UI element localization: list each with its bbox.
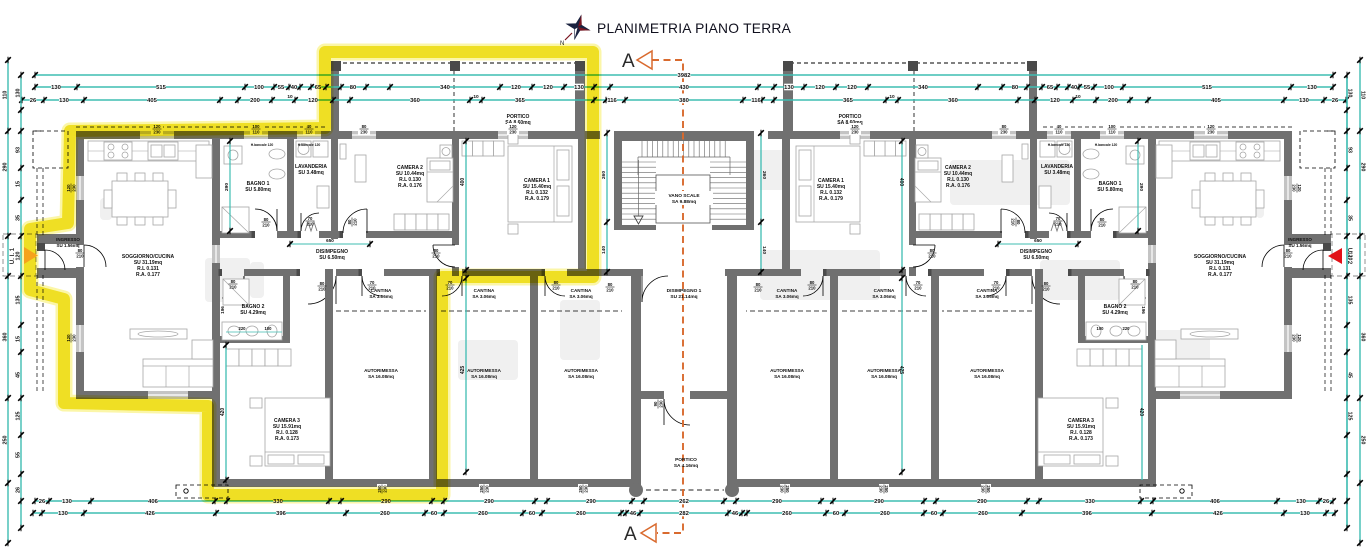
- svg-text:DISIMPEGNO 1: DISIMPEGNO 1: [667, 288, 702, 294]
- svg-text:515: 515: [156, 85, 166, 91]
- svg-text:210: 210: [262, 222, 270, 227]
- svg-text:SA 3.06mq: SA 3.06mq: [775, 294, 799, 299]
- svg-text:196: 196: [1141, 306, 1146, 314]
- svg-text:15: 15: [16, 336, 22, 342]
- svg-text:250: 250: [884, 485, 889, 493]
- svg-text:230: 230: [851, 129, 859, 134]
- svg-text:290: 290: [586, 499, 596, 505]
- svg-text:130: 130: [16, 89, 22, 98]
- svg-text:340: 340: [440, 85, 450, 91]
- svg-text:SA 4.16mq: SA 4.16mq: [674, 463, 698, 469]
- svg-text:426: 426: [1213, 511, 1223, 517]
- svg-text:N: N: [560, 41, 564, 47]
- svg-text:60: 60: [931, 511, 937, 517]
- svg-text:10: 10: [1075, 94, 1081, 100]
- svg-text:90: 90: [653, 401, 658, 406]
- svg-text:SU 3.48mq: SU 3.48mq: [298, 170, 324, 176]
- svg-text:290: 290: [224, 183, 230, 191]
- svg-text:R.A. 0.177: R.A. 0.177: [136, 272, 160, 278]
- svg-text:80: 80: [756, 282, 761, 287]
- svg-text:SA 16.08mq: SA 16.08mq: [568, 374, 594, 379]
- svg-text:140: 140: [601, 246, 607, 254]
- svg-text:210: 210: [992, 285, 1000, 290]
- svg-text:116: 116: [607, 98, 617, 104]
- svg-text:SA 16.08mq: SA 16.08mq: [471, 374, 497, 379]
- svg-text:10: 10: [287, 94, 293, 100]
- svg-text:CANTINA: CANTINA: [571, 288, 592, 293]
- svg-text:120: 120: [308, 98, 318, 104]
- svg-text:AUTORIMESSA: AUTORIMESSA: [770, 368, 805, 373]
- svg-text:60: 60: [529, 511, 535, 517]
- svg-text:A: A: [624, 524, 637, 545]
- svg-text:230: 230: [1207, 129, 1215, 134]
- svg-text:120: 120: [511, 85, 521, 91]
- svg-text:AUTORIMESSA: AUTORIMESSA: [364, 368, 399, 373]
- svg-text:AUTORIMESSA: AUTORIMESSA: [564, 368, 599, 373]
- svg-text:400: 400: [898, 178, 904, 187]
- svg-text:420: 420: [220, 408, 226, 417]
- svg-text:250: 250: [479, 485, 484, 493]
- svg-text:65: 65: [1047, 85, 1054, 91]
- svg-text:230: 230: [658, 400, 663, 408]
- svg-text:100: 100: [1097, 326, 1105, 331]
- svg-text:396: 396: [276, 511, 286, 517]
- svg-text:SU 4.29mq: SU 4.29mq: [240, 310, 266, 316]
- svg-text:80: 80: [810, 280, 815, 285]
- svg-text:40: 40: [291, 85, 297, 91]
- svg-text:45: 45: [1347, 372, 1353, 378]
- svg-text:80: 80: [350, 85, 356, 91]
- svg-text:290: 290: [1138, 183, 1144, 191]
- svg-text:80: 80: [362, 124, 367, 129]
- svg-text:SU 4.29mq: SU 4.29mq: [1102, 310, 1128, 316]
- svg-text:210: 210: [1054, 221, 1062, 226]
- svg-text:340: 340: [918, 85, 928, 91]
- svg-text:360: 360: [3, 333, 9, 342]
- svg-text:INGRESSO: INGRESSO: [1288, 237, 1312, 242]
- svg-text:210: 210: [306, 221, 314, 226]
- svg-text:210: 210: [368, 285, 376, 290]
- svg-text:290: 290: [874, 499, 884, 505]
- svg-text:100: 100: [254, 85, 264, 91]
- svg-text:130: 130: [59, 98, 69, 104]
- svg-text:210: 210: [1011, 218, 1016, 226]
- svg-text:405: 405: [147, 98, 157, 104]
- svg-text:AUTORIMESSA: AUTORIMESSA: [970, 368, 1005, 373]
- svg-text:120: 120: [1297, 334, 1302, 342]
- svg-text:CANTINA: CANTINA: [474, 288, 495, 293]
- svg-text:130: 130: [62, 499, 72, 505]
- svg-text:230: 230: [360, 129, 368, 134]
- svg-text:650: 650: [326, 238, 334, 243]
- svg-text:80: 80: [320, 281, 325, 286]
- svg-text:SA 3.06mq: SA 3.06mq: [472, 294, 496, 299]
- svg-text:250: 250: [785, 485, 790, 493]
- svg-text:200: 200: [1108, 98, 1118, 104]
- svg-text:70: 70: [1056, 216, 1061, 221]
- svg-text:210: 210: [1042, 286, 1050, 291]
- svg-text:130: 130: [784, 85, 794, 91]
- svg-text:230: 230: [1292, 184, 1297, 192]
- svg-text:120: 120: [509, 124, 517, 129]
- svg-text:VANO SCALE: VANO SCALE: [668, 193, 700, 199]
- svg-text:420: 420: [1138, 408, 1144, 417]
- svg-text:260: 260: [782, 511, 792, 517]
- svg-text:125: 125: [1347, 412, 1353, 421]
- svg-text:AUTORIMESSA: AUTORIMESSA: [467, 368, 502, 373]
- svg-text:426: 426: [145, 511, 155, 517]
- svg-text:290: 290: [1360, 163, 1366, 172]
- svg-text:100: 100: [265, 326, 273, 331]
- svg-text:55: 55: [1084, 85, 1091, 91]
- svg-text:290: 290: [484, 499, 494, 505]
- svg-text:40: 40: [1071, 85, 1077, 91]
- svg-text:120: 120: [1297, 184, 1302, 192]
- svg-text:100: 100: [1108, 124, 1116, 129]
- svg-text:120: 120: [16, 252, 22, 261]
- svg-text:230: 230: [1000, 129, 1008, 134]
- svg-text:26: 26: [1323, 499, 1330, 505]
- svg-text:SA 16.08mq: SA 16.08mq: [774, 374, 800, 379]
- svg-text:PORTICO: PORTICO: [675, 457, 697, 463]
- svg-text:35: 35: [16, 215, 22, 221]
- svg-text:120: 120: [543, 85, 553, 91]
- svg-text:230: 230: [509, 129, 517, 134]
- svg-text:120: 120: [851, 124, 859, 129]
- svg-text:220: 220: [1123, 326, 1131, 331]
- svg-text:H.bancale 120: H.bancale 120: [251, 143, 274, 147]
- svg-text:H.bancale 120: H.bancale 120: [1048, 143, 1071, 147]
- svg-text:210: 210: [1284, 253, 1292, 258]
- svg-text:93: 93: [16, 147, 22, 153]
- svg-text:330: 330: [1085, 499, 1095, 505]
- svg-text:R.A. 0.176: R.A. 0.176: [398, 183, 422, 189]
- svg-text:290: 290: [977, 499, 987, 505]
- svg-text:70: 70: [370, 280, 375, 285]
- svg-text:260: 260: [380, 511, 390, 517]
- svg-text:380: 380: [679, 98, 689, 104]
- svg-text:120: 120: [1050, 98, 1060, 104]
- svg-text:110: 110: [1056, 129, 1064, 134]
- svg-text:80: 80: [1100, 217, 1105, 222]
- svg-text:70: 70: [916, 280, 921, 285]
- svg-text:135: 135: [16, 296, 22, 305]
- svg-text:SA 16.08mq: SA 16.08mq: [871, 374, 897, 379]
- svg-text:260: 260: [478, 511, 488, 517]
- svg-text:INGRESSO: INGRESSO: [56, 237, 80, 242]
- svg-text:26: 26: [39, 499, 46, 505]
- svg-text:210: 210: [1098, 222, 1106, 227]
- svg-text:80: 80: [264, 217, 269, 222]
- svg-text:116: 116: [751, 98, 761, 104]
- svg-text:46: 46: [630, 511, 637, 517]
- svg-text:250: 250: [3, 436, 9, 445]
- svg-text:AUTORIMESSA: AUTORIMESSA: [867, 368, 902, 373]
- svg-text:55: 55: [16, 452, 22, 458]
- svg-text:120: 120: [847, 85, 857, 91]
- svg-text:210: 210: [914, 285, 922, 290]
- svg-text:230: 230: [879, 485, 884, 493]
- svg-text:210: 210: [606, 287, 614, 292]
- svg-text:R.A. 0.173: R.A. 0.173: [1069, 436, 1093, 442]
- svg-text:396: 396: [1082, 511, 1092, 517]
- svg-text:SA 3.06mq: SA 3.06mq: [872, 294, 896, 299]
- svg-text:230: 230: [981, 485, 986, 493]
- svg-text:130: 130: [1299, 98, 1309, 104]
- svg-text:120: 120: [815, 85, 825, 91]
- svg-text:80: 80: [1016, 220, 1021, 225]
- svg-text:515: 515: [1202, 85, 1212, 91]
- svg-text:CANTINA: CANTINA: [777, 288, 798, 293]
- svg-text:196: 196: [220, 306, 225, 314]
- svg-text:210: 210: [76, 253, 84, 258]
- svg-text:SU 6.50mq: SU 6.50mq: [319, 255, 345, 261]
- svg-text:SU 6.50mq: SU 6.50mq: [1023, 255, 1049, 261]
- svg-text:230: 230: [583, 485, 588, 493]
- svg-text:R.A. 0.176: R.A. 0.176: [946, 183, 970, 189]
- svg-text:365: 365: [843, 98, 853, 104]
- svg-text:140: 140: [761, 246, 767, 254]
- svg-text:H.bancale 120: H.bancale 120: [298, 143, 321, 147]
- svg-text:PLANIMETRIA PIANO TERRA: PLANIMETRIA PIANO TERRA: [597, 21, 792, 36]
- svg-text:SU 21.14mq: SU 21.14mq: [670, 294, 697, 300]
- svg-text:230: 230: [1292, 334, 1297, 342]
- svg-text:80: 80: [347, 219, 352, 224]
- svg-text:CANTINA: CANTINA: [874, 288, 895, 293]
- svg-text:250: 250: [1360, 436, 1366, 445]
- svg-text:135: 135: [1347, 296, 1353, 305]
- svg-text:80: 80: [1044, 281, 1049, 286]
- svg-text:R.A. 0.179: R.A. 0.179: [819, 196, 843, 202]
- svg-text:15: 15: [16, 181, 22, 187]
- svg-text:40: 40: [1057, 124, 1062, 129]
- svg-text:365: 365: [515, 98, 525, 104]
- svg-text:360: 360: [1360, 333, 1366, 342]
- svg-text:80: 80: [1133, 279, 1138, 284]
- svg-text:130: 130: [574, 85, 584, 91]
- svg-text:210: 210: [552, 285, 560, 290]
- svg-text:650: 650: [1034, 238, 1042, 243]
- svg-text:360: 360: [410, 98, 420, 104]
- svg-text:10: 10: [473, 94, 479, 100]
- svg-text:SA 3.06mq: SA 3.06mq: [975, 294, 999, 299]
- svg-text:260: 260: [601, 171, 607, 179]
- svg-text:210: 210: [754, 287, 762, 292]
- svg-text:SU 3.48mq: SU 3.48mq: [1044, 170, 1070, 176]
- svg-text:210: 210: [229, 284, 237, 289]
- svg-text:SU 1.56mq: SU 1.56mq: [1288, 243, 1311, 248]
- svg-text:80: 80: [434, 248, 439, 253]
- svg-text:70: 70: [994, 280, 999, 285]
- svg-text:406: 406: [148, 499, 158, 505]
- svg-text:26: 26: [16, 487, 22, 493]
- svg-text:230: 230: [780, 485, 785, 493]
- svg-text:200: 200: [250, 98, 260, 104]
- svg-text:SA 16.08mq: SA 16.08mq: [974, 374, 1000, 379]
- svg-text:210: 210: [432, 253, 440, 258]
- svg-text:SU 5.80mq: SU 5.80mq: [1097, 187, 1123, 193]
- svg-text:R.A. 0.177: R.A. 0.177: [1208, 272, 1232, 278]
- svg-text:110: 110: [3, 91, 9, 100]
- svg-text:130: 130: [1347, 89, 1353, 98]
- svg-text:R.A. 0.179: R.A. 0.179: [525, 196, 549, 202]
- svg-text:70: 70: [308, 216, 313, 221]
- svg-text:406: 406: [1210, 499, 1220, 505]
- svg-text:130: 130: [1307, 85, 1317, 91]
- svg-text:SA 9.88mq: SA 9.88mq: [672, 199, 696, 205]
- svg-text:R.A. 0.173: R.A. 0.173: [275, 436, 299, 442]
- svg-text:80: 80: [1012, 85, 1018, 91]
- svg-text:100: 100: [1104, 85, 1114, 91]
- svg-text:130: 130: [1300, 511, 1310, 517]
- svg-text:130: 130: [58, 511, 68, 517]
- svg-text:H.bancale 120: H.bancale 120: [1095, 143, 1118, 147]
- svg-text:130: 130: [1296, 499, 1306, 505]
- svg-text:SA 16.08mq: SA 16.08mq: [368, 374, 394, 379]
- svg-text:125: 125: [16, 412, 22, 421]
- svg-text:290: 290: [772, 499, 782, 505]
- svg-text:210: 210: [928, 253, 936, 258]
- svg-text:46: 46: [732, 511, 739, 517]
- svg-text:282: 282: [679, 511, 689, 517]
- svg-text:210: 210: [352, 218, 357, 226]
- svg-text:SA 3.06mq: SA 3.06mq: [569, 294, 593, 299]
- svg-text:360: 360: [948, 98, 958, 104]
- svg-text:80: 80: [78, 248, 83, 253]
- svg-text:130: 130: [51, 85, 61, 91]
- svg-text:230: 230: [484, 485, 489, 493]
- svg-text:210: 210: [1131, 284, 1139, 289]
- svg-text:425: 425: [460, 366, 466, 375]
- svg-text:210: 210: [318, 286, 326, 291]
- svg-text:U. I. 1: U. I. 1: [9, 247, 16, 264]
- svg-text:260: 260: [576, 511, 586, 517]
- svg-text:35: 35: [1347, 215, 1353, 221]
- svg-text:250: 250: [578, 485, 583, 493]
- svg-text:110: 110: [1109, 129, 1117, 134]
- svg-text:120: 120: [1207, 124, 1215, 129]
- svg-text:262: 262: [679, 499, 689, 505]
- svg-text:SU 1.56mq: SU 1.56mq: [56, 243, 79, 248]
- svg-text:260: 260: [761, 171, 767, 179]
- svg-text:80: 80: [1002, 124, 1007, 129]
- svg-text:SA 3.06mq: SA 3.06mq: [369, 294, 393, 299]
- svg-text:80: 80: [1286, 248, 1291, 253]
- svg-text:3982: 3982: [678, 73, 691, 79]
- svg-text:SU 5.80mq: SU 5.80mq: [245, 187, 271, 193]
- svg-text:10: 10: [889, 94, 895, 100]
- svg-text:55: 55: [278, 85, 285, 91]
- svg-text:U. I. 2: U. I. 2: [1346, 248, 1353, 265]
- svg-text:26: 26: [1332, 98, 1339, 104]
- svg-text:80: 80: [608, 282, 613, 287]
- svg-text:26: 26: [30, 98, 37, 104]
- svg-text:110: 110: [1360, 91, 1366, 99]
- svg-text:290: 290: [3, 163, 9, 172]
- svg-text:400: 400: [460, 178, 466, 187]
- svg-text:260: 260: [978, 511, 988, 517]
- svg-text:220: 220: [239, 326, 247, 331]
- svg-text:210: 210: [808, 285, 816, 290]
- svg-text:250: 250: [986, 485, 991, 493]
- svg-text:A: A: [622, 51, 635, 72]
- svg-text:80: 80: [231, 279, 236, 284]
- svg-text:405: 405: [1211, 98, 1221, 104]
- svg-text:60: 60: [833, 511, 839, 517]
- svg-text:60: 60: [431, 511, 437, 517]
- svg-text:430: 430: [679, 85, 689, 91]
- svg-text:93: 93: [1347, 147, 1353, 153]
- svg-text:80: 80: [930, 248, 935, 253]
- svg-text:45: 45: [16, 372, 22, 378]
- svg-text:260: 260: [880, 511, 890, 517]
